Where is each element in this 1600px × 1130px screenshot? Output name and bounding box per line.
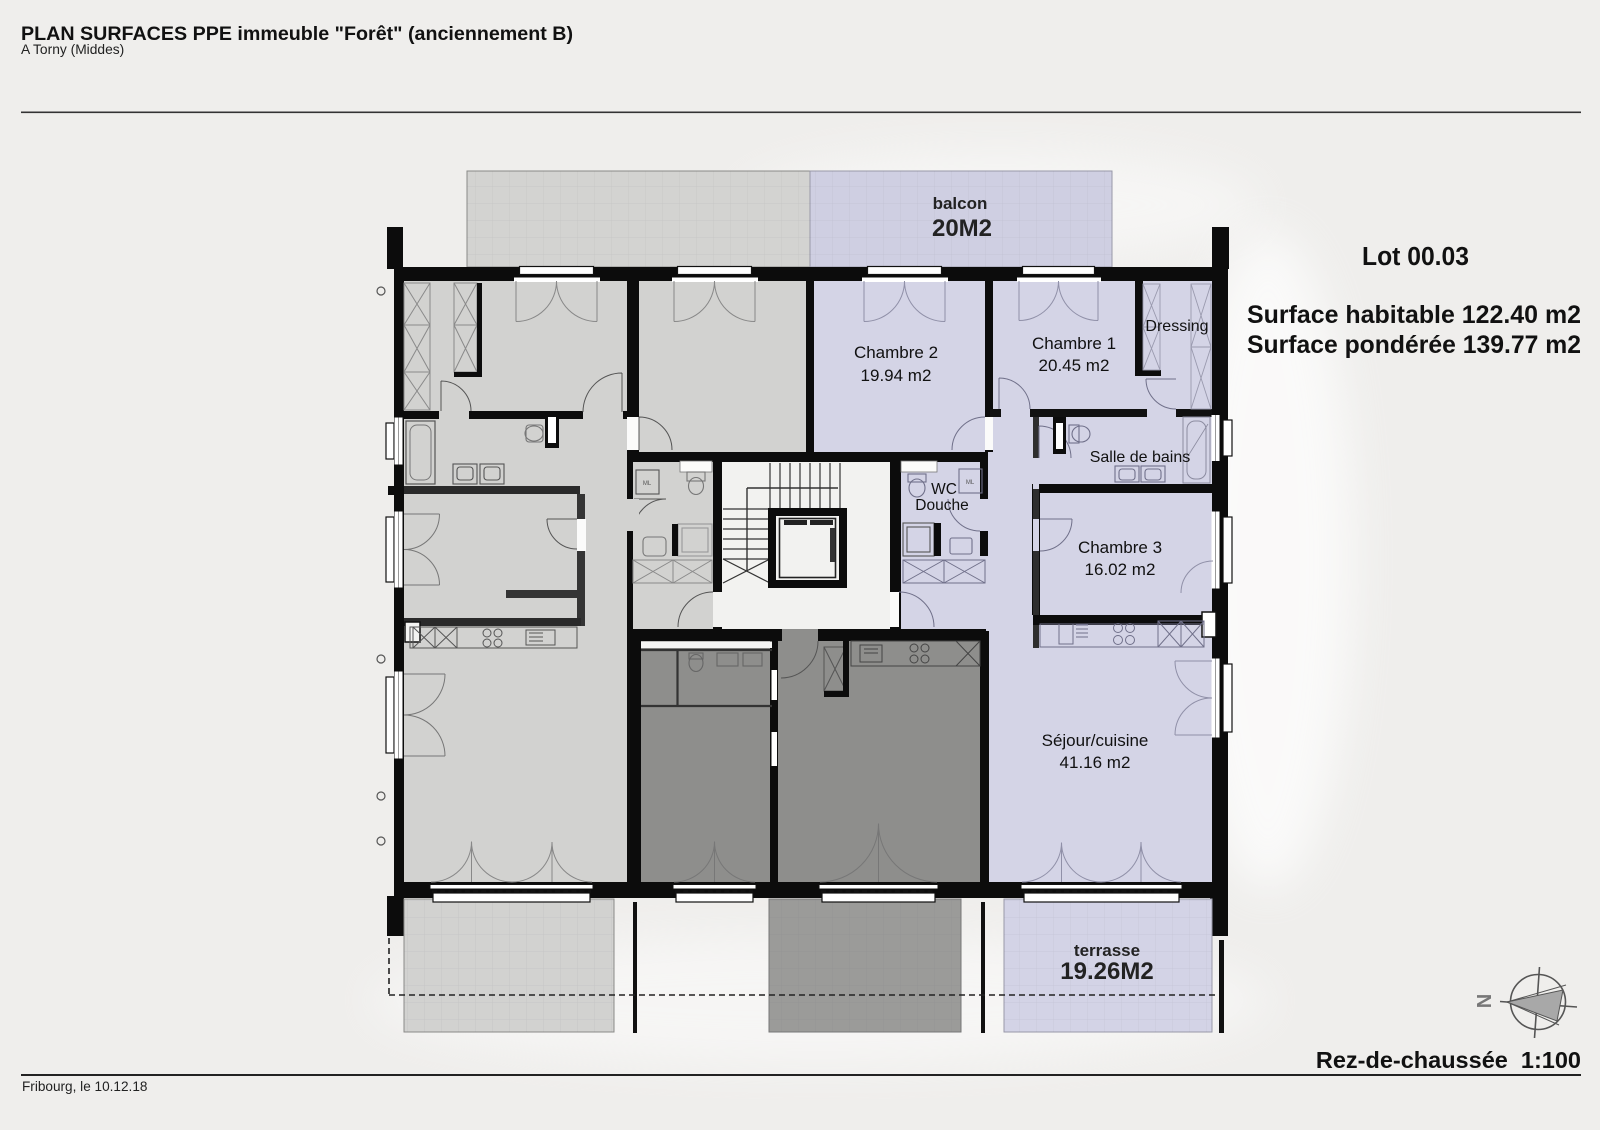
svg-text:Rez-de-chaussée 1:100: Rez-de-chaussée 1:100 <box>1316 1047 1581 1073</box>
svg-text:19.94 m2: 19.94 m2 <box>861 366 932 385</box>
svg-text:16.02 m2: 16.02 m2 <box>1085 560 1156 579</box>
svg-text:N: N <box>1474 994 1496 1008</box>
svg-text:ML: ML <box>643 481 652 487</box>
svg-text:Séjour/cuisine: Séjour/cuisine <box>1042 731 1149 750</box>
svg-text:Dressing: Dressing <box>1145 318 1208 335</box>
svg-text:Surface habitable 122.40 m2: Surface habitable 122.40 m2 <box>1247 302 1581 329</box>
svg-text:Chambre 3: Chambre 3 <box>1078 538 1162 557</box>
svg-text:Fribourg, le 10.12.18: Fribourg, le 10.12.18 <box>22 1079 147 1094</box>
svg-text:WC: WC <box>931 481 957 498</box>
svg-text:ML: ML <box>966 480 975 486</box>
svg-text:20.45 m2: 20.45 m2 <box>1039 356 1110 375</box>
svg-text:Chambre 1: Chambre 1 <box>1032 334 1116 353</box>
svg-text:41.16 m2: 41.16 m2 <box>1060 753 1131 772</box>
svg-text:Chambre 2: Chambre 2 <box>854 343 938 362</box>
svg-text:A Torny (Middes): A Torny (Middes) <box>21 42 124 57</box>
svg-text:Salle de bains: Salle de bains <box>1090 449 1191 466</box>
svg-text:Douche: Douche <box>915 497 968 514</box>
svg-text:Lot 00.03: Lot 00.03 <box>1362 243 1469 271</box>
svg-text:Surface pondérée 139.77 m2: Surface pondérée 139.77 m2 <box>1247 332 1581 359</box>
